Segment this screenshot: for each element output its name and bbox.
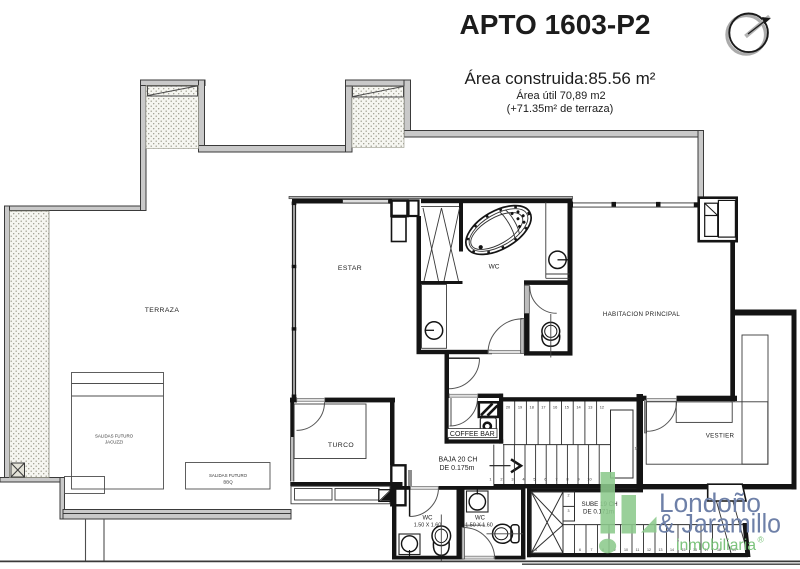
svg-text:DE 0.175m: DE 0.175m	[439, 465, 474, 472]
svg-text:5: 5	[533, 477, 535, 482]
svg-text:12: 12	[647, 548, 651, 552]
svg-text:13: 13	[588, 405, 592, 410]
svg-text:14: 14	[670, 548, 674, 552]
svg-text:WC: WC	[475, 516, 486, 522]
svg-text:2: 2	[568, 494, 570, 498]
svg-text:Área construida:85.56 m²: Área construida:85.56 m²	[465, 69, 656, 88]
svg-text:6: 6	[544, 477, 546, 482]
svg-text:Área útil 70,89 m2: Área útil 70,89 m2	[516, 89, 605, 102]
svg-text:12: 12	[600, 405, 604, 410]
svg-text:BBQ: BBQ	[223, 480, 233, 485]
svg-text:HABITACION PRINCIPAL: HABITACION PRINCIPAL	[603, 311, 681, 318]
svg-text:6: 6	[579, 548, 581, 552]
svg-text:WC: WC	[423, 516, 434, 522]
svg-text:19: 19	[518, 405, 522, 410]
svg-text:18: 18	[530, 405, 534, 410]
svg-text:5: 5	[535, 548, 537, 552]
svg-text:SALIDAS FUTURO: SALIDAS FUTURO	[95, 434, 134, 439]
svg-text:10: 10	[624, 548, 628, 552]
svg-text:13: 13	[659, 548, 663, 552]
svg-text:3: 3	[568, 509, 570, 513]
svg-text:WC: WC	[489, 264, 500, 271]
svg-text:2: 2	[500, 477, 502, 482]
svg-text:7: 7	[555, 477, 557, 482]
svg-text:®: ®	[758, 535, 765, 545]
svg-text:COFFEE BAR: COFFEE BAR	[450, 431, 495, 438]
svg-text:ESTAR: ESTAR	[338, 265, 362, 272]
svg-text:11: 11	[634, 446, 638, 451]
svg-text:VESTIER: VESTIER	[706, 433, 735, 440]
svg-text:(+71.35m² de terraza): (+71.35m² de terraza)	[507, 103, 614, 115]
svg-text:JACUZZI: JACUZZI	[105, 440, 123, 445]
svg-text:9: 9	[577, 477, 579, 482]
svg-text:1.50 X 1.60: 1.50 X 1.60	[465, 523, 493, 529]
svg-text:16: 16	[553, 405, 557, 410]
svg-text:1: 1	[489, 477, 491, 482]
svg-text:7: 7	[591, 548, 593, 552]
svg-text:15: 15	[565, 405, 569, 410]
svg-text:3: 3	[511, 477, 513, 482]
svg-text:8: 8	[566, 477, 568, 482]
svg-text:11: 11	[636, 548, 640, 552]
svg-text:inmobiliaria: inmobiliaria	[676, 537, 756, 554]
svg-text:APTO 1603-P2: APTO 1603-P2	[460, 9, 651, 40]
svg-text:TURCO: TURCO	[328, 442, 354, 449]
svg-text:BAJA 20 CH: BAJA 20 CH	[439, 457, 478, 464]
svg-text:17: 17	[541, 405, 545, 410]
svg-text:TERRAZA: TERRAZA	[145, 307, 180, 314]
svg-text:SALIDAS FUTURO: SALIDAS FUTURO	[209, 473, 248, 478]
